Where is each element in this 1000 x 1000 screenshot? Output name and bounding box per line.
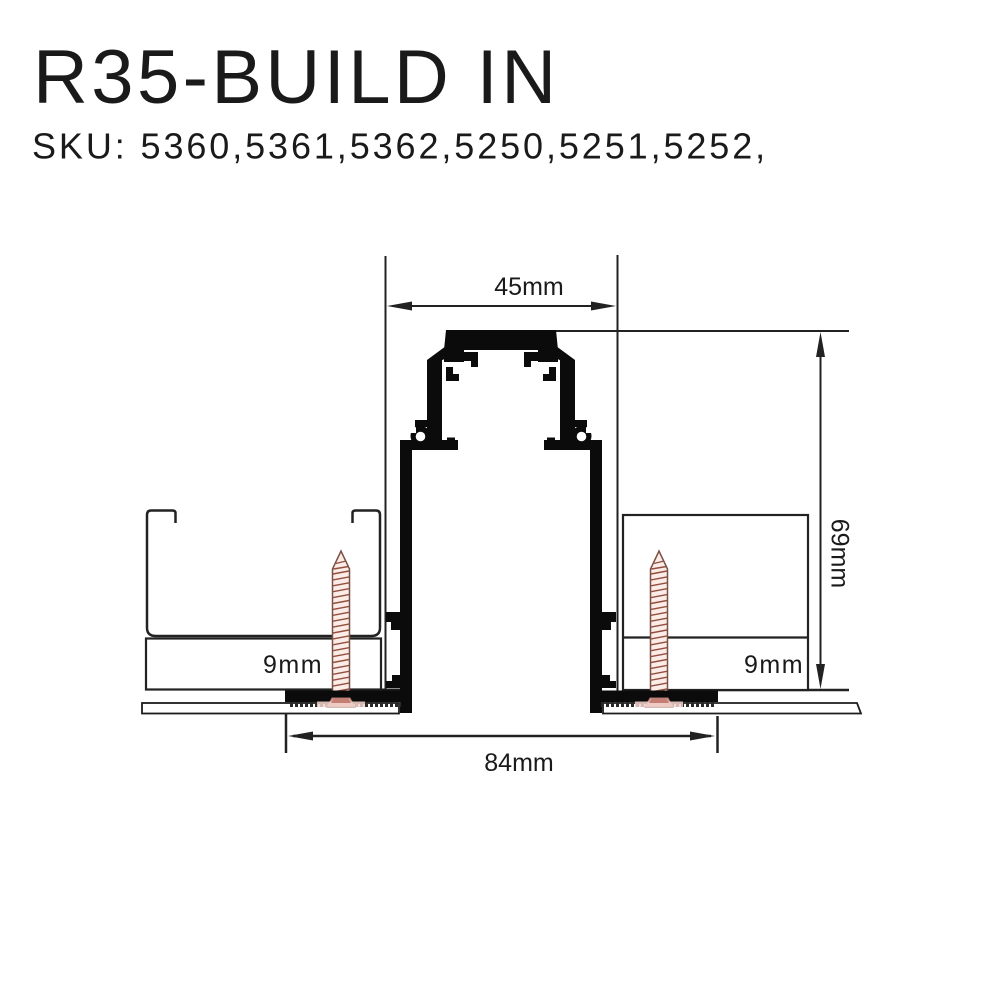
svg-text:84mm: 84mm <box>484 749 553 777</box>
svg-text:45mm: 45mm <box>494 273 563 301</box>
svg-text:69mm: 69mm <box>826 519 854 588</box>
svg-text:R35-BUILD IN: R35-BUILD IN <box>33 35 560 120</box>
svg-text:9mm: 9mm <box>744 651 804 679</box>
svg-text:SKU: 5360,5361,5362,5250,5251,: SKU: 5360,5361,5362,5250,5251,5252, <box>32 126 768 167</box>
svg-text:9mm: 9mm <box>263 651 323 679</box>
